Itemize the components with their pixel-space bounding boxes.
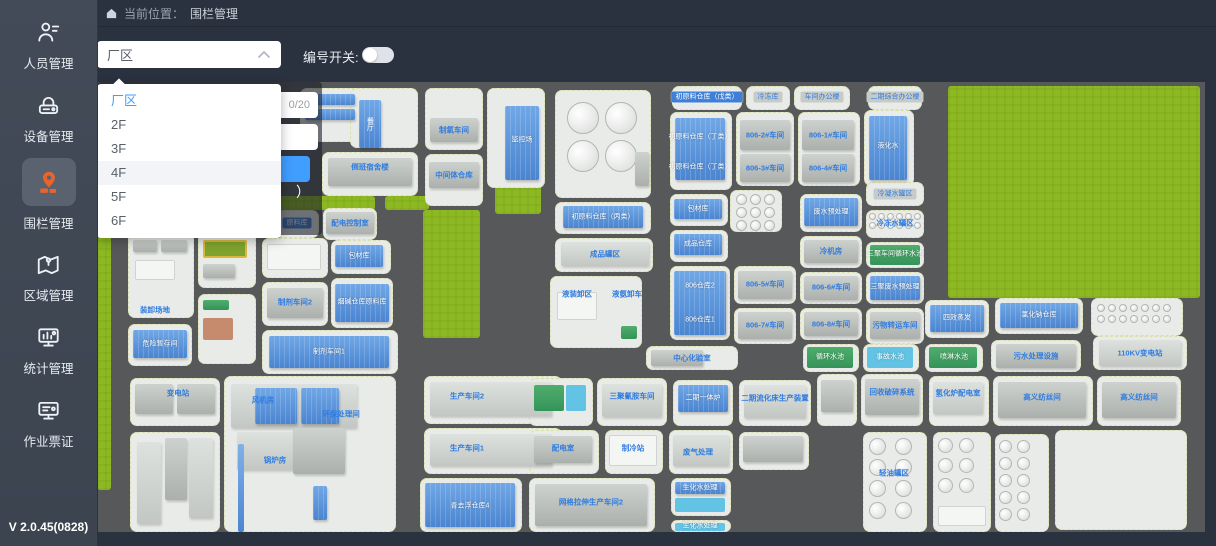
map-gray (165, 438, 187, 500)
map-btxt: 制剂车间2 (278, 298, 312, 306)
map-tank (959, 438, 974, 453)
map-gray (743, 436, 803, 462)
map-btxt: 806-5#车间 (746, 280, 784, 288)
map-tank (605, 140, 637, 172)
map-btxt: 废气处理 (683, 448, 713, 456)
sidebar-item-work-permit[interactable]: 作业票证 (0, 398, 97, 450)
map-btxt: 三聚氰胺车间 (610, 392, 655, 400)
map-gpill: 冷冻库 (754, 92, 783, 103)
map-btxt: 污水处理设施 (1014, 352, 1059, 360)
map-grayl (933, 382, 983, 414)
floor-dropdown: 厂区2F3F4F5F6F (97, 84, 281, 238)
map-pill: 初原料仓库（戊类） (672, 92, 743, 103)
map-btxt: 中心化验室 (673, 354, 711, 362)
dropdown-option[interactable]: 3F (97, 137, 281, 161)
map-btxt: 成品罐区 (590, 250, 620, 258)
map-btxt: 轻油罐区 (879, 469, 909, 477)
ticket-monitor-icon (35, 398, 62, 424)
map-tank (1097, 304, 1105, 312)
map-tank (959, 458, 974, 473)
map-tank (764, 207, 775, 218)
map-wtxt: 包材库 (349, 253, 370, 260)
map-tank (1108, 315, 1116, 323)
map-gray (821, 380, 853, 412)
map-gray (203, 264, 235, 278)
map-wtxt: 三聚车间循环水池 (867, 251, 923, 258)
map-tank (938, 478, 953, 493)
sidebar-item-personnel[interactable]: 人员管理 (0, 20, 97, 72)
map-gray (133, 240, 157, 252)
app-version: V 2.0.45(0828) (0, 520, 97, 534)
char-counter: 0/20 (289, 99, 310, 111)
map-wtxt: 制剂车间1 (313, 349, 345, 356)
map-wtxt: 事故水池 (876, 354, 904, 361)
map-green (385, 196, 429, 210)
map-wtxt: 氯化钠仓库 (1022, 312, 1057, 319)
map-wtxt: 二期一体炉 (686, 395, 721, 402)
map-tank (999, 508, 1012, 521)
map-btxt: 冷冻水罐区 (876, 219, 914, 227)
map-wtxt: 初原料仓库（丙类） (572, 214, 635, 221)
map-tank (869, 213, 876, 220)
map-tank (605, 102, 637, 134)
map-blue (675, 118, 725, 180)
map-btxt: 污物转运车间 (873, 321, 918, 329)
map-btxt: 液装卸区 (562, 290, 592, 298)
active-item-tile (22, 158, 76, 206)
map-white (938, 506, 986, 526)
map-btxt: 制氧车间 (439, 126, 469, 134)
map-tank (1163, 304, 1171, 312)
map-tank (1017, 491, 1030, 504)
map-btxt: 806-3#车间 (746, 164, 784, 172)
map-tank (869, 438, 886, 455)
map-wtxt: 成品仓库 (684, 241, 712, 248)
map-btxt: 回收破碎系统 (870, 388, 915, 396)
map-btxt: 配电控制室 (331, 219, 369, 227)
map-tank (999, 491, 1012, 504)
map-wtxt: 806仓库2 (685, 283, 715, 290)
map-white (267, 244, 321, 270)
map-tank (764, 220, 775, 231)
dropdown-option[interactable]: 4F (97, 161, 281, 185)
floor-select-value: 厂区 (107, 45, 257, 64)
map-tank (736, 220, 747, 231)
map-tank (1017, 440, 1030, 453)
map-wtxt: 循环水池 (816, 354, 844, 361)
map-tank (1152, 315, 1160, 323)
map-greenb (203, 300, 229, 310)
map-wtxt: 危险暂存间 (143, 341, 178, 348)
map-wtxt: 三聚废水预处理 (871, 284, 920, 291)
map-grayl (602, 384, 662, 417)
stats-monitor-icon (35, 325, 62, 351)
map-tank (1119, 315, 1127, 323)
map-wtxt: 烟碱仓库原料库 (338, 299, 387, 306)
map-green (423, 210, 480, 338)
map-gray (293, 428, 345, 474)
dropdown-option[interactable]: 5F (97, 185, 281, 209)
map-orange (203, 318, 233, 340)
map-tank (567, 102, 599, 134)
map-gpill: 二期综合办公楼 (867, 92, 924, 103)
map-wtxt: 青去浮仓库4 (451, 503, 490, 510)
number-switch-label: 编号开关: (303, 47, 359, 66)
map-btxt: 中间体仓库 (435, 171, 473, 179)
dropdown-option[interactable]: 2F (97, 113, 281, 137)
map-wtxt: 初原料仓库（丁类） (669, 134, 732, 141)
sidebar-item-fence[interactable]: 围栏管理 (0, 158, 97, 232)
map-tank (1017, 508, 1030, 521)
users-icon (35, 20, 62, 46)
map-btxt: 氢化炉配电室 (936, 389, 981, 397)
switch-knob (363, 48, 377, 62)
map-btxt: 风机房 (252, 396, 275, 404)
map-tank (1141, 304, 1149, 312)
map-wtxt: 生化水处理 (683, 485, 718, 492)
map-tank (750, 220, 761, 231)
home-icon (105, 7, 118, 20)
map-tank (567, 140, 599, 172)
map-tank (895, 480, 912, 497)
map-tank (1017, 474, 1030, 487)
map-tank (914, 213, 921, 220)
map-grayl (189, 438, 213, 518)
map-btxt: 制冷站 (622, 444, 645, 452)
map-white (135, 260, 175, 280)
map-tank (1017, 457, 1030, 470)
map-tank (869, 222, 876, 229)
map-btxt: 110KV变电站 (1117, 349, 1162, 357)
breadcrumb-current: 围栏管理 (190, 5, 238, 22)
sidebar-item-label: 设备管理 (23, 130, 73, 144)
map-btxt: 配电室 (552, 444, 575, 452)
map-tank (736, 194, 747, 205)
map-btxt: 变电站 (167, 389, 190, 397)
map-tank (914, 222, 921, 229)
map-tank (869, 480, 886, 497)
map-greenb (534, 385, 564, 411)
map-btxt: 环保处理间 (322, 410, 360, 418)
map-tank (895, 502, 912, 519)
map-tank (736, 207, 747, 218)
map-tank (938, 458, 953, 473)
map-cyan (566, 385, 586, 411)
map-tank (1108, 304, 1116, 312)
map-btxt: 806-6#车间 (812, 283, 850, 291)
map-wtxt: 四效蒸发 (943, 315, 971, 322)
map-tank (1152, 304, 1160, 312)
map-wtxt: 包材库 (688, 206, 709, 213)
map-wtxt: 废水预处理 (814, 209, 849, 216)
fence-pin-icon (36, 169, 62, 195)
app-window: 餐厅倒班宿舍楼原料库配电控制室制氧车间中间体仓库监控场初原料仓库（丙类）成品罐区… (0, 0, 1216, 546)
map-greenb (621, 326, 637, 339)
map-btxt: 806-1#车间 (809, 131, 847, 139)
map-green (97, 228, 111, 490)
map-gpill: 冷凝水罐区 (874, 189, 917, 200)
map-tank (764, 194, 775, 205)
breadcrumb-prefix: 当前位置： (124, 5, 184, 22)
map-btxt: 高义纺丝间 (1120, 393, 1158, 401)
map-wtxt: 806仓库1 (685, 317, 715, 324)
map-blue (313, 486, 327, 520)
map-btxt: 网格拉伸生产车间2 (559, 498, 623, 506)
map-cyan (675, 498, 725, 512)
sidebar-item-label: 人员管理 (23, 57, 73, 71)
sidebar-item-label: 作业票证 (23, 435, 73, 449)
map-ybldg (203, 240, 247, 258)
map-gpill: 车间办公楼 (801, 92, 844, 103)
map-gray (865, 379, 919, 415)
map-tank (1141, 315, 1149, 323)
breadcrumb: 当前位置： 围栏管理 (97, 0, 1216, 27)
map-blue (255, 388, 297, 424)
map-tank (1097, 315, 1105, 323)
map-btxt: 液氨卸车 (612, 290, 642, 298)
map-blue (301, 388, 339, 424)
map-btxt: 锅炉房 (264, 456, 287, 464)
sidebar-nav: 人员管理 设备管理 围栏管理 区域管理 统计管理 作业票证 V 2.0.45(0… (0, 0, 98, 546)
map-btxt: 806-2#车间 (746, 131, 784, 139)
sidebar-item-region[interactable]: 区域管理 (0, 252, 97, 304)
map-tank (750, 207, 761, 218)
map-btxt: 806-7#车间 (746, 321, 784, 329)
map-btxt: 806-4#车间 (809, 164, 847, 172)
map-blue (674, 271, 726, 335)
map-plot (1055, 430, 1187, 530)
map-tank (1163, 315, 1171, 323)
map-chimney (238, 444, 244, 532)
map-tank (999, 440, 1012, 453)
map-vtxt: 餐厅 (367, 117, 374, 131)
map-btxt: 装卸场地 (140, 306, 170, 314)
map-gray (635, 152, 649, 186)
floor-select[interactable]: 厂区 (97, 41, 281, 68)
map-btxt: 倒班宿舍楼 (351, 163, 389, 171)
region-map-icon (35, 252, 62, 278)
map-tank (999, 474, 1012, 487)
map-btxt: 冷机房 (820, 247, 843, 255)
map-btxt: 806-8#车间 (812, 320, 850, 328)
map-green (948, 86, 1200, 298)
map-btxt: 高义纺丝间 (1023, 393, 1061, 401)
map-tank (999, 457, 1012, 470)
map-tank (959, 478, 974, 493)
sidebar-item-label: 统计管理 (23, 362, 73, 376)
map-tank (895, 438, 912, 455)
map-wtxt: 生化水处理 (683, 523, 718, 530)
number-switch-toggle[interactable] (362, 47, 394, 63)
map-wtxt: 喷淋水池 (940, 354, 968, 361)
dropdown-option[interactable]: 厂区 (97, 89, 281, 113)
map-wtxt: 监控场 (512, 137, 533, 144)
dropdown-option[interactable]: 6F (97, 209, 281, 233)
map-btxt: 二期流化床生产装置 (741, 394, 809, 402)
map-tank (869, 502, 886, 519)
map-tank (1119, 304, 1127, 312)
map-wtxt: 液化水 (878, 143, 899, 150)
sidebar-item-label: 区域管理 (23, 289, 73, 303)
map-btxt: 生产车间2 (450, 392, 484, 400)
map-btxt: 生产车间1 (450, 444, 484, 452)
chevron-up-icon (257, 49, 271, 60)
map-tank (1130, 315, 1138, 323)
map-tank (938, 438, 953, 453)
map-grayl (137, 442, 161, 524)
map-tank (750, 194, 761, 205)
sidebar-item-equipment[interactable]: 设备管理 (0, 93, 97, 145)
panel-text-fragment: ） (296, 182, 310, 202)
sidebar-item-statistics[interactable]: 统计管理 (0, 325, 97, 377)
map-tank (1130, 304, 1138, 312)
map-wtxt: 初原料仓库（丁类） (669, 164, 732, 171)
sidebar-item-label: 围栏管理 (23, 217, 73, 231)
map-gray (161, 240, 187, 252)
device-icon (35, 93, 62, 119)
